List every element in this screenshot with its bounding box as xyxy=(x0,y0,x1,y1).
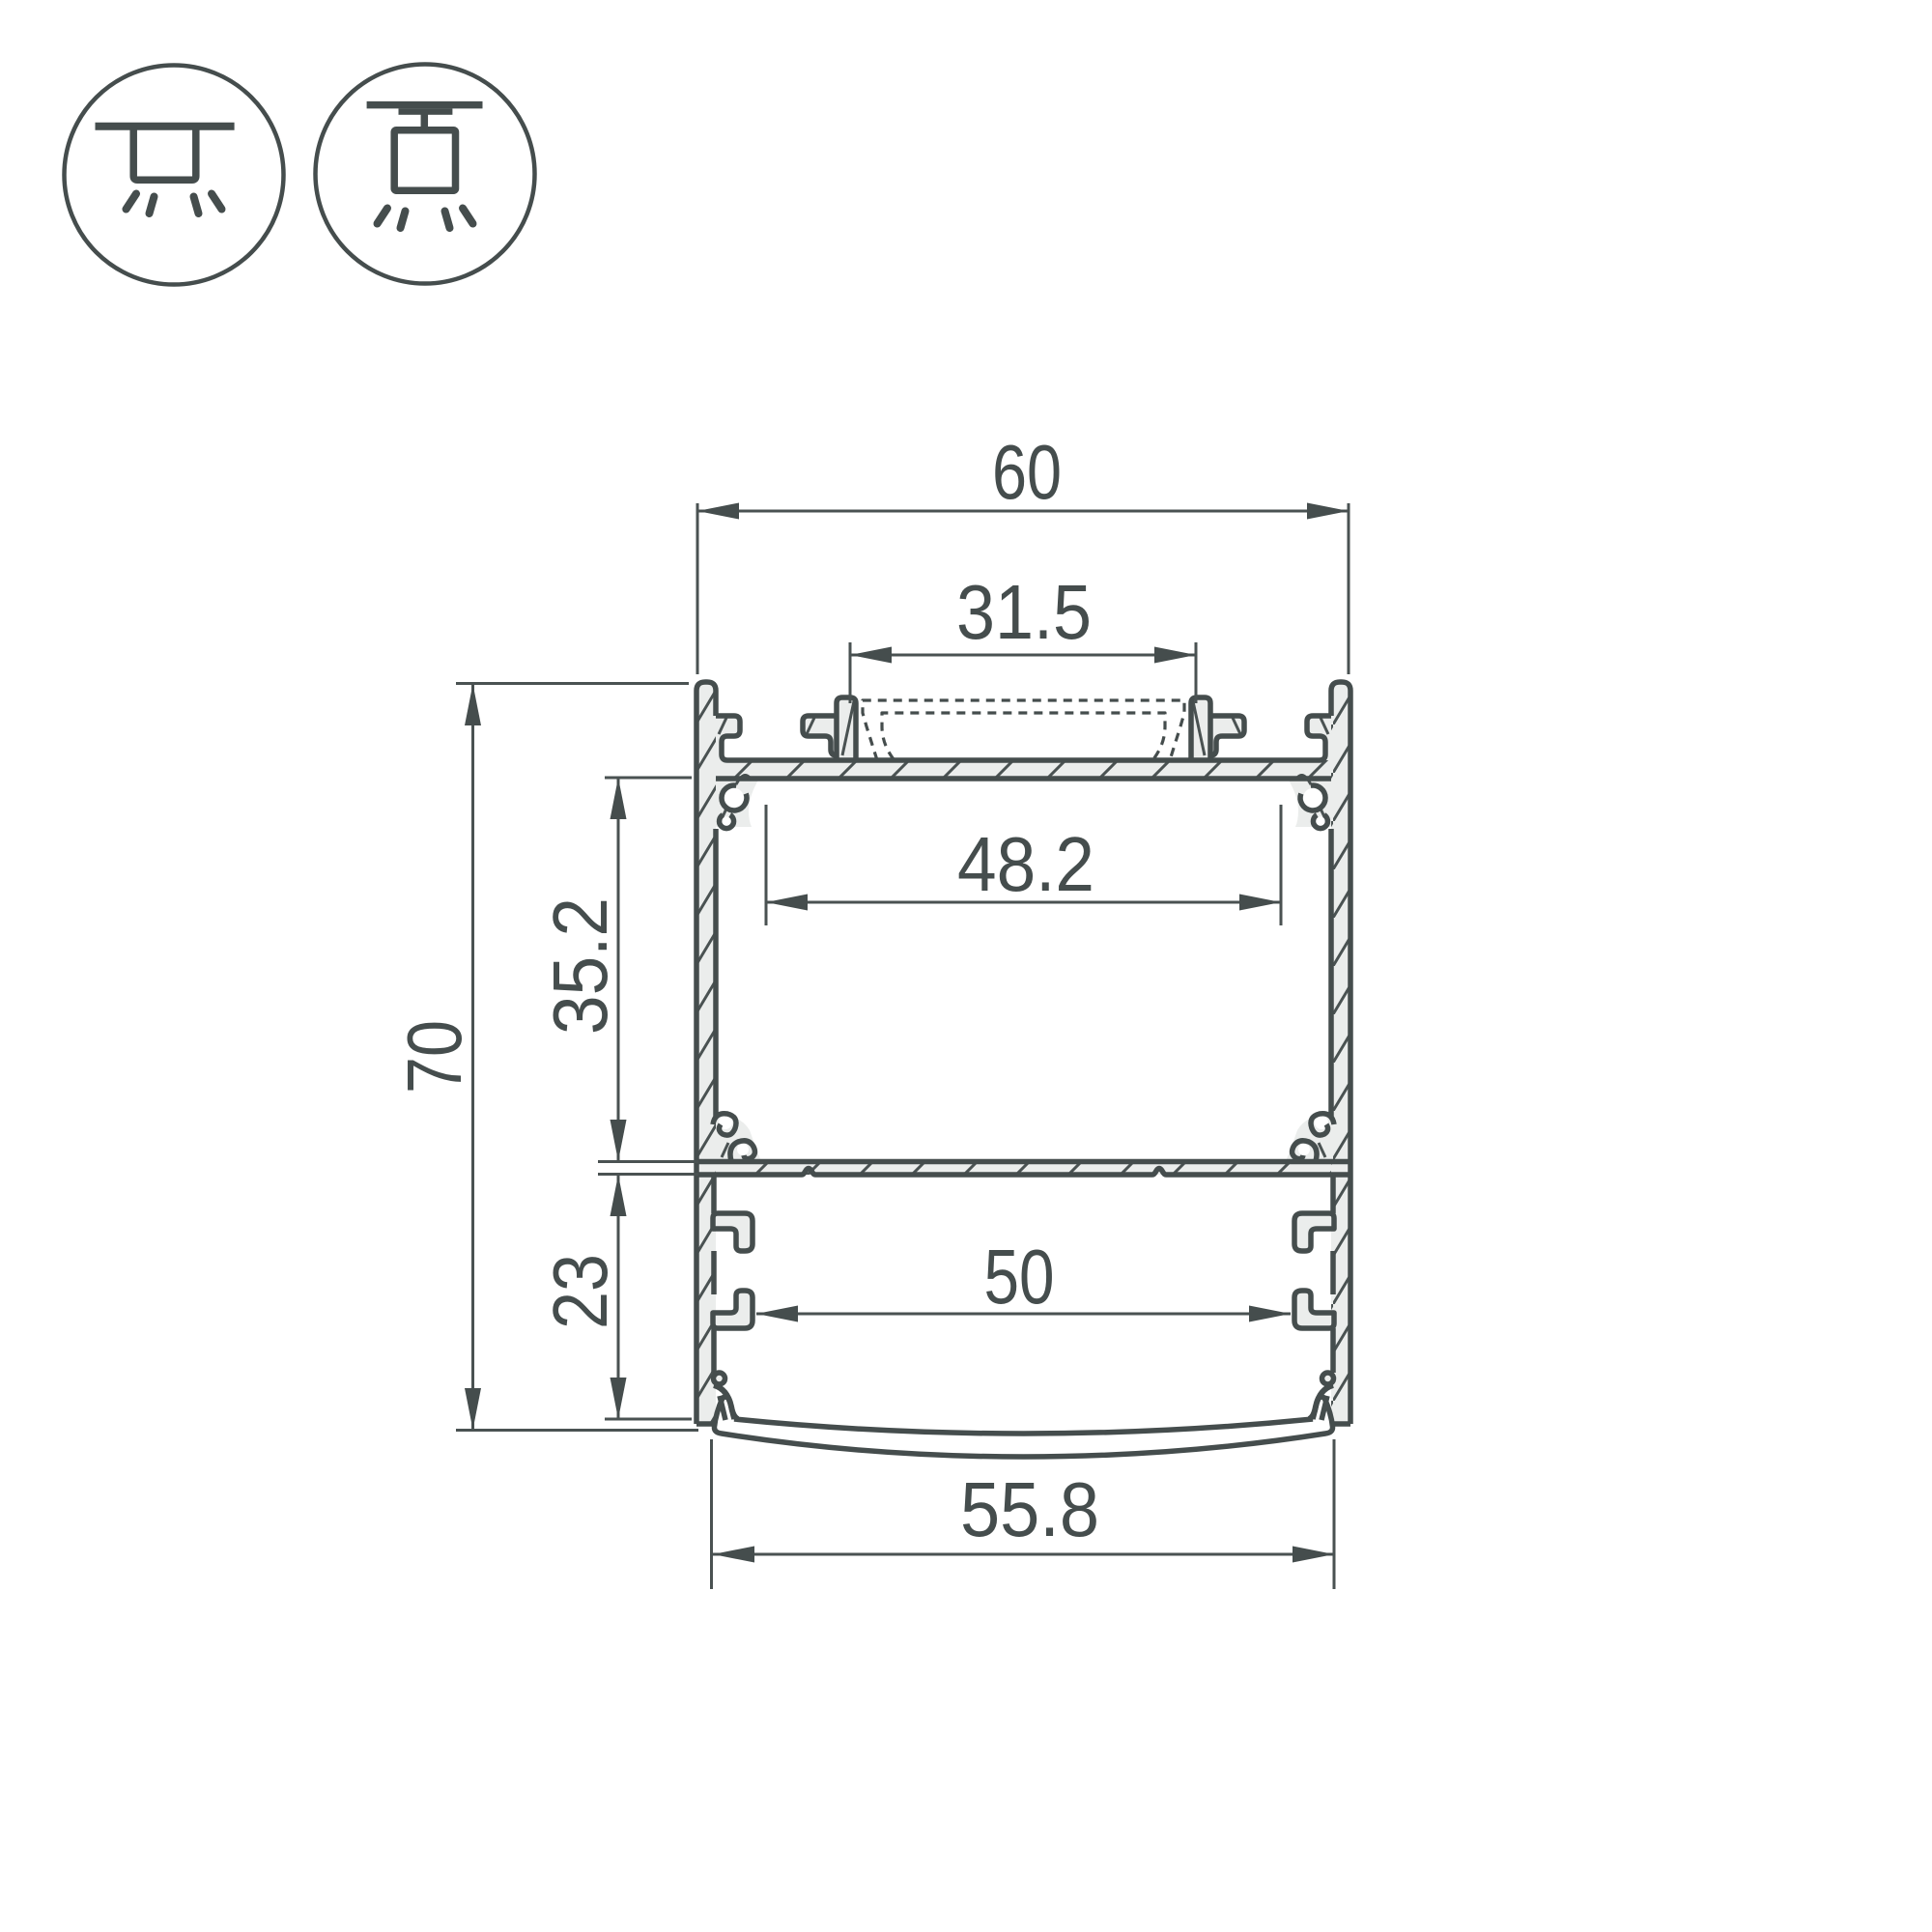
svg-text:70: 70 xyxy=(391,1020,477,1094)
svg-text:50: 50 xyxy=(984,1234,1055,1320)
svg-text:55.8: 55.8 xyxy=(960,1466,1099,1552)
svg-text:60: 60 xyxy=(992,429,1062,515)
svg-text:31.5: 31.5 xyxy=(956,569,1092,655)
svg-text:48.2: 48.2 xyxy=(957,821,1094,907)
svg-text:35.2: 35.2 xyxy=(537,897,623,1035)
svg-text:23: 23 xyxy=(537,1254,623,1329)
